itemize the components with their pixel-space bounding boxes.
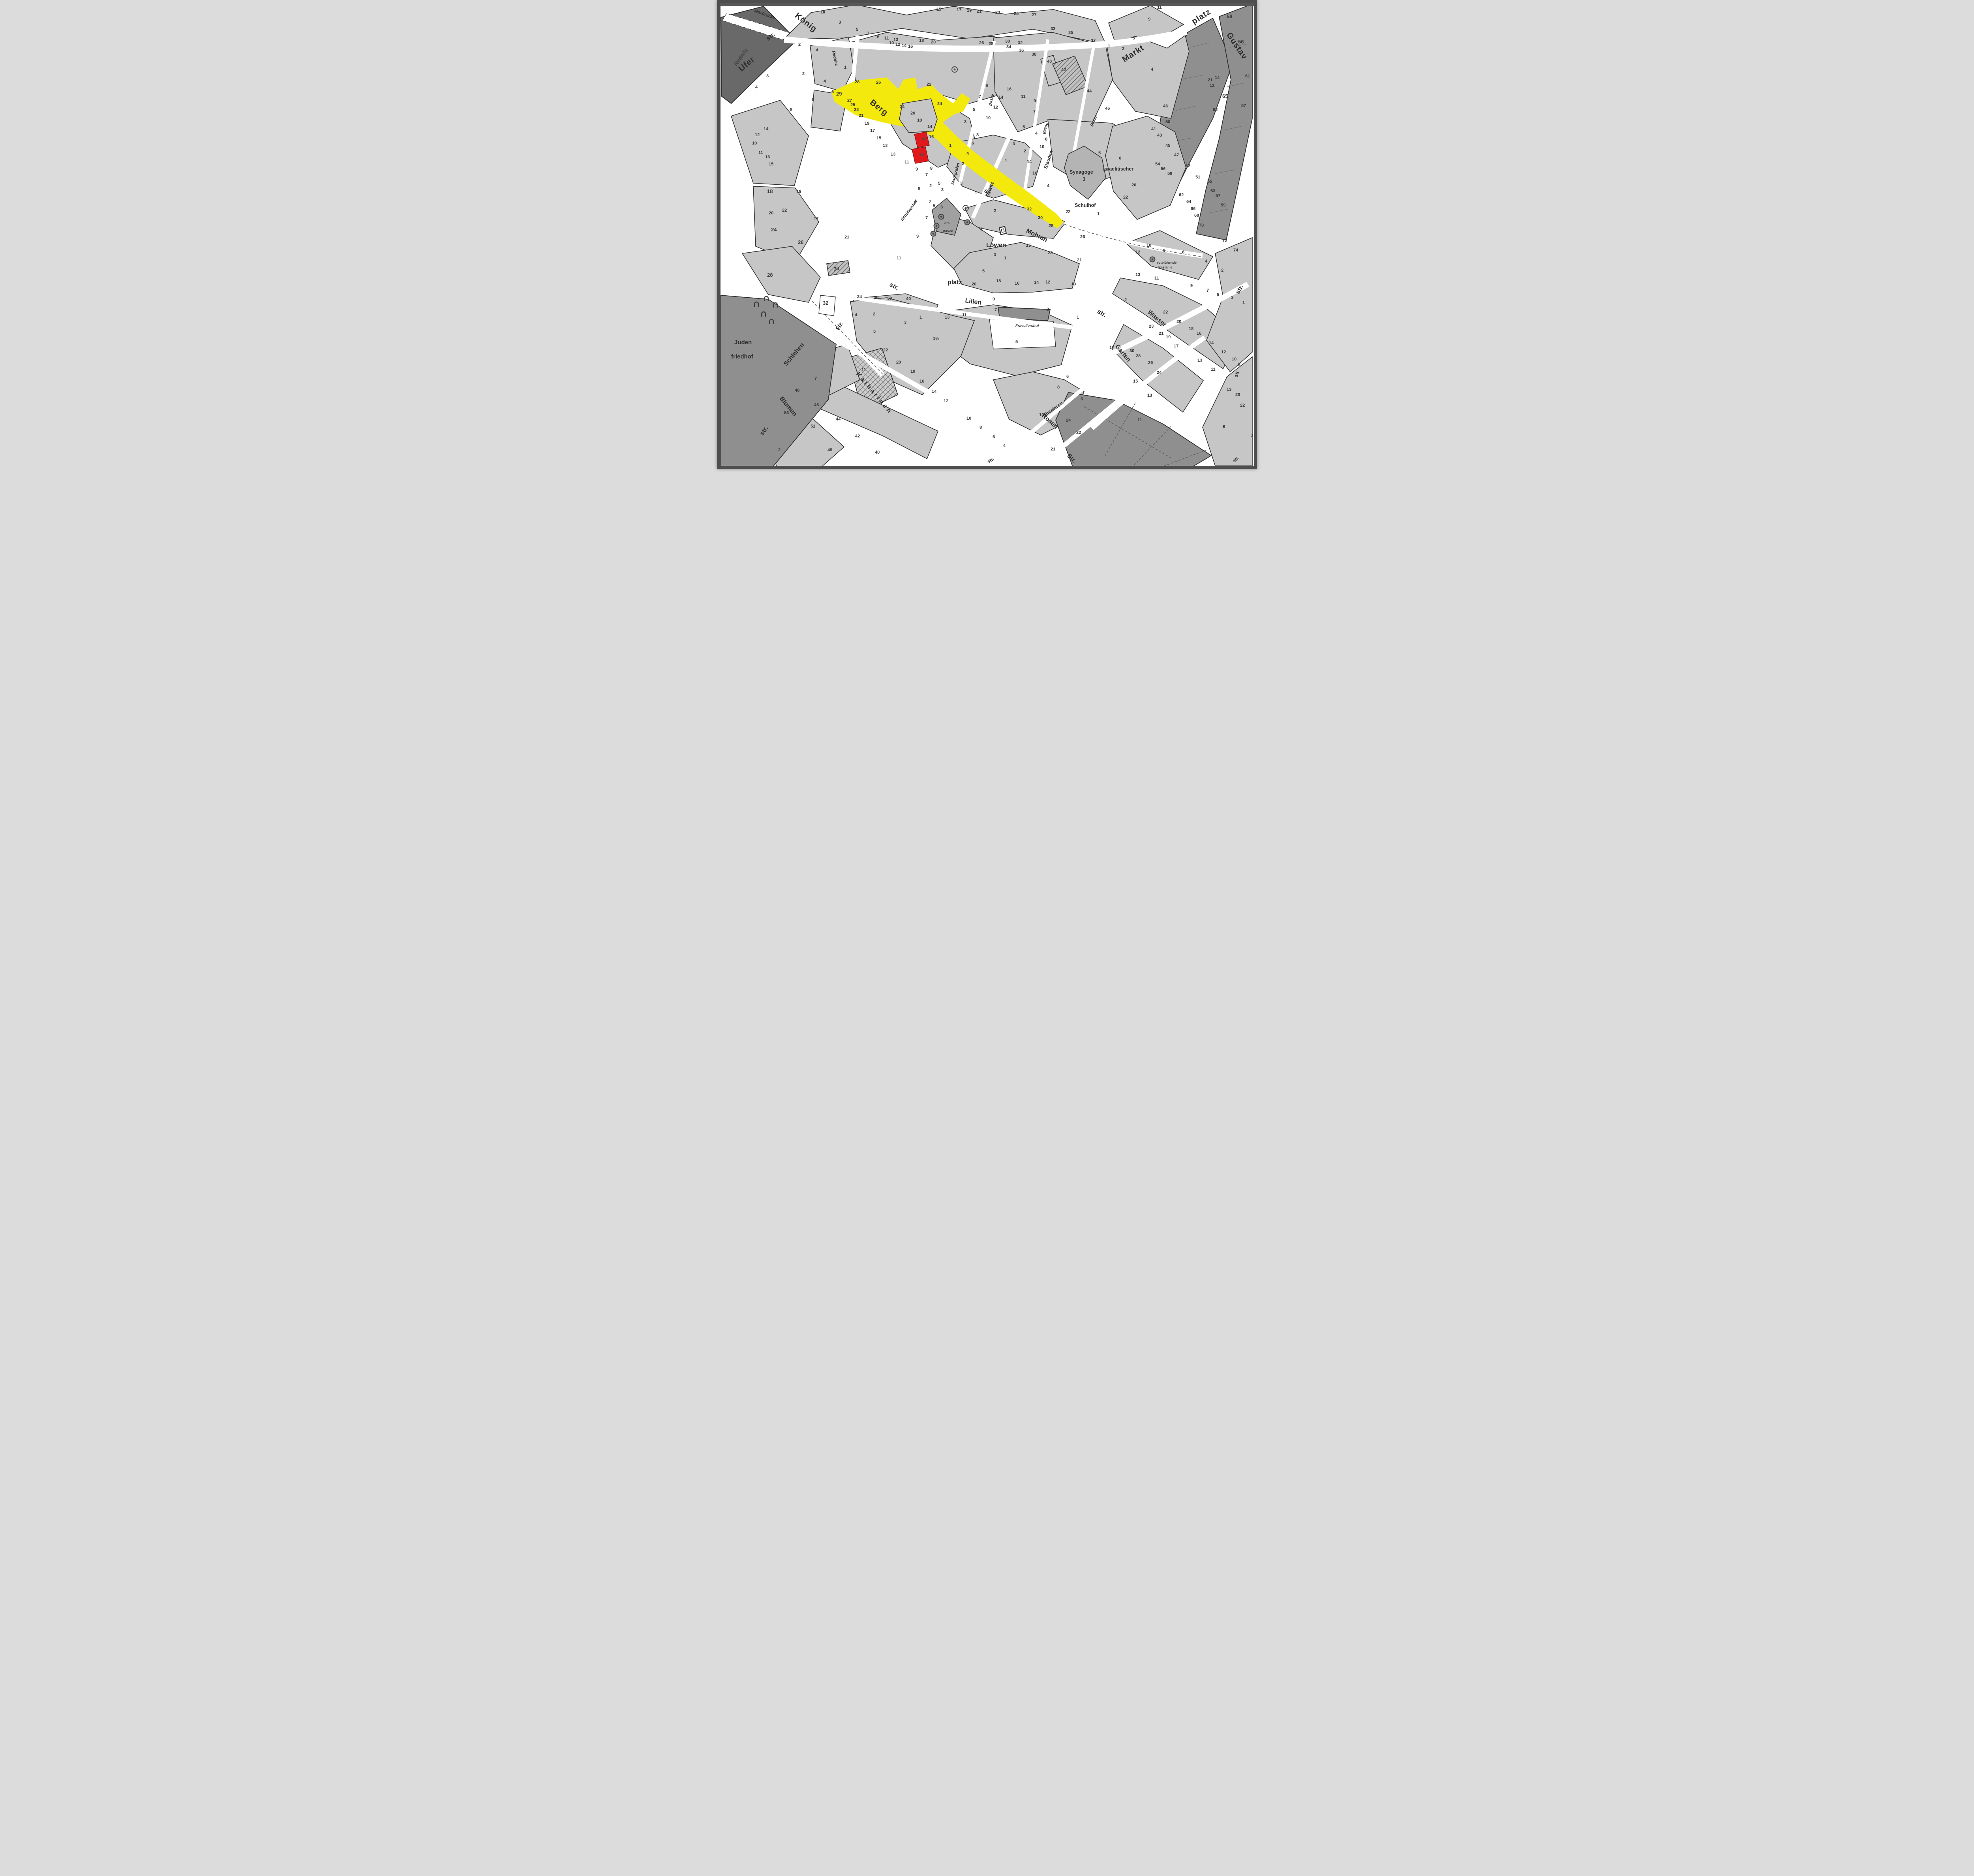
building-number: 5 [873,329,876,334]
building-number: 15 [769,162,773,167]
building-number: 15 [876,136,881,141]
building-number: 40 [875,450,880,455]
historic-city-map: 11a3579111315171921232527333537135911101… [717,0,1257,469]
building-number: 1 [844,65,846,70]
building-number: 13 [1147,393,1152,398]
building-number: 3 [839,20,841,25]
building-number: 7 [979,94,981,99]
building-number: 13 [883,143,888,148]
building-number: 9 [1190,283,1193,288]
building-number: 3 [941,188,944,192]
building-number: 46 [1105,106,1110,111]
building-number: 10 [1232,357,1237,362]
building-number: 2 [929,200,931,204]
building-number: 3 [994,253,996,257]
tree-icon [940,216,942,218]
building-number: 9 [876,34,879,39]
building-number: 36 [874,295,878,300]
building-number: 18 [919,38,924,43]
building-number: 9 [916,167,918,172]
building-number: 24 [937,101,942,106]
building-number: 14 [998,95,1004,100]
building-number: 13 [893,38,898,42]
building-number: 20 [1131,183,1136,188]
building-number: 14 [1209,341,1214,345]
building-number: 4 [824,79,826,84]
building-number: 11 [758,150,763,155]
building-number: 63 [1213,107,1218,112]
building-number: 12 [895,42,900,47]
building-number: 44 [836,417,841,422]
building-number: 8 [1238,362,1240,367]
building-number: 4 [855,313,858,317]
building-number: 10 [1040,144,1044,149]
building-number: 3 [964,120,966,124]
building-number: 18 [1189,326,1193,331]
building-number: 68 [1194,213,1199,218]
building-number: 8 [979,425,982,430]
building-number: 11 [962,313,967,317]
building-number: 13 [945,315,949,320]
building-number: 10 [889,41,894,45]
building-number: 50 [1165,120,1170,124]
building-number: 15 [936,7,941,12]
building-number: 19 [1166,335,1171,340]
building-number: 61 [1245,74,1250,79]
building-number: 1 [1108,44,1110,49]
building-number: 28 [1049,223,1053,228]
building-number: 6 [812,98,814,102]
building-number: 1 [975,191,977,195]
building-number: 3 [1251,433,1253,438]
building-number: 5 [1015,340,1018,344]
building-number: 7 [925,173,928,177]
building-number: 20 [1177,319,1181,324]
building-number: 5 [1023,125,1025,129]
building-number: 9 [986,84,988,88]
building-number: 6 [1066,374,1069,379]
street-label: rotblühende [1157,261,1177,265]
building-number: 49 [828,448,832,452]
tree-icon [965,207,967,209]
building-number: 6 [1119,156,1121,161]
building-number: 17 [870,128,875,133]
monument-icon [999,227,1006,235]
building-number: 3 [1081,397,1083,401]
building-number: 25 [1014,11,1019,16]
building-number: 3 [1013,142,1015,146]
building-number: 74 [1233,248,1238,253]
building-number: 24 [1157,370,1162,375]
street-label: Schulhof [1075,203,1096,208]
building-number: 4 [1151,67,1154,72]
building-number: 20 [931,40,936,45]
building-number: 65 [1222,93,1228,99]
building-number: 8 [1163,249,1165,253]
building-number: 11 [1211,367,1216,372]
building-number: 11 [1137,418,1142,422]
building-number: 30 [1005,39,1010,44]
building-number: 8 [930,166,933,171]
building-number: 5 [973,107,975,112]
building-number: 33 [1051,26,1055,31]
building-number: 64 [1186,199,1192,204]
building-number: 22 [1123,195,1128,200]
building-number: 5 [1133,36,1135,41]
street-label: drei [944,221,951,225]
building-number: 22 [883,348,888,353]
building-number: 14 [927,124,933,129]
building-number: 32 [823,300,828,306]
building-number: 51 [811,424,815,429]
building-number: 19 [967,8,972,13]
street-label: Synagoge [1070,169,1093,175]
building-number: 14 [1034,280,1039,285]
building-number: 18 [996,279,1001,283]
building-number: 18 [917,118,922,123]
building-number: 11 [1021,94,1026,99]
building-number: 13 [1227,387,1231,392]
building-number: 2 [798,42,801,47]
building-number: 7 [1207,288,1209,293]
building-number: 6 [993,435,995,439]
building-number: 22 [782,208,787,213]
building-number: 55 [1207,179,1212,184]
building-number: 34 [857,295,862,299]
building-number: 16 [1007,87,1011,92]
building-number: 16 [929,135,934,139]
building-number: 2 [962,161,964,166]
building-number: 45 [1165,143,1170,148]
building-number: 10 [752,141,757,146]
building-number: 3 [1083,176,1085,182]
building-number: 5 [1098,151,1101,156]
street-label: friedhof [731,353,754,360]
building-number: 8 [1057,385,1060,390]
building-number: 42 [855,434,860,439]
building-number: 20 [1235,392,1240,397]
building-number: 20 [910,111,915,116]
building-number: 2 [929,184,932,188]
building-number: 8 [1045,137,1047,142]
building-number: 1 [1097,212,1100,216]
building-number: 37 [1091,38,1096,43]
street-label: Juden [734,339,752,346]
building-number: 11 [897,256,901,261]
building-number: 22 [1240,403,1245,408]
building-number: 26 [1080,234,1085,239]
building-number: 4 [966,151,969,156]
building-number: 7 [867,31,869,36]
street-label: Birken [943,229,953,233]
building-number: 4 [1035,131,1038,136]
building-number: 8 [976,133,979,137]
building-number: 2 [873,312,875,317]
building-number: 25 [850,103,855,107]
building-number: 48 [795,388,799,393]
building-number: 3 [1122,47,1124,51]
building-number: 6 [831,90,834,94]
building-number: 3 [1231,295,1233,300]
building-number: 12 [1221,350,1226,355]
building-number: 23 [995,10,1000,15]
building-number: 47 [1174,153,1179,158]
building-number: 23 [1149,324,1154,329]
building-number: 1 [1005,159,1007,163]
building-number: 21 [977,9,981,14]
building-number: 3 [960,181,963,186]
building-number: 24 [771,227,777,233]
building-number: 26 [1148,360,1153,365]
building-number: 57 [1216,193,1220,198]
building-number: 16 [919,379,924,384]
building-number: 46 [814,403,819,407]
building-number: 6 [972,141,974,146]
building-number: 30 [833,265,839,272]
building-number: 7 [814,376,817,381]
building-number: 53 [1210,189,1215,193]
building-number: 17 [1174,344,1178,349]
building-number: 14 [764,127,769,131]
building-number: 2 [1124,298,1127,302]
building-number: 44 [1087,89,1092,94]
building-number: 38 [887,296,892,301]
building-number: 4 [1003,443,1006,448]
building-number: 26 [798,239,803,245]
building-number: 5 [856,27,858,32]
building-number: 14 [932,389,937,394]
building-number: 12 [1135,250,1140,255]
building-number: 4 [816,48,818,53]
building-number: 9 [916,234,919,239]
building-number: 14 [1027,159,1032,164]
building-number: 34 [1006,45,1011,49]
building-number: 5 [933,204,935,208]
building-number: 8 [918,186,920,191]
building-number: 3 [1047,307,1049,312]
building-number: 8 [790,107,792,112]
building-number: 32 [1027,207,1032,212]
building-number: 25 [1026,243,1031,248]
building-number: 24 [1066,418,1071,423]
building-number: 22 [1163,310,1168,315]
building-number: 10 [1146,243,1151,248]
building-number: 17 [1109,345,1114,350]
building-number: 5 [1217,293,1219,297]
city-map-screenshot: 11a3579111315171921232527333537135911101… [717,0,1257,469]
building-number: 49 [1185,163,1190,168]
building-number: 54 [1155,162,1160,167]
tree-icon [933,233,934,234]
building-number: 11 [884,36,889,41]
building-number: 17 [957,8,961,12]
tree-icon [954,69,956,71]
building-number: 1 [1077,315,1079,320]
building-number: 4 [755,85,758,90]
tree-icon [936,225,937,227]
building-number: 28 [1136,354,1141,358]
building-number: 12 [993,105,998,110]
building-number: 9 [1148,17,1150,22]
building-number: 32 [1018,41,1023,45]
building-number: 72 [1222,238,1227,243]
building-number: 57 [1241,103,1246,108]
building-number: 5 [982,269,985,274]
building-number: 14 [1215,75,1220,80]
building-number: 1 [1242,300,1245,305]
building-number: 3 [940,205,943,210]
building-number: 22 [1076,430,1081,435]
building-number: 20 [972,282,976,287]
street-label: platz [948,279,962,286]
building-number: 12 [755,133,760,137]
building-number: 4 [1205,259,1208,264]
building-number: 9 [1223,424,1225,429]
building-number: 1 [919,315,922,320]
building-number: 62 [1179,193,1184,197]
street-label: Fraveliershuf [1015,324,1039,328]
building-number: 58 [1227,13,1232,19]
building-number: 9 [1034,99,1036,103]
building-number: 22 [927,82,931,87]
building-number: 10 [1071,282,1076,287]
building-number: 23 [1048,251,1053,255]
building-number: 38 [1032,52,1036,57]
building-number: 6 [1182,250,1184,255]
building-number: 20 [769,211,773,216]
building-number: 36 [1019,48,1024,53]
building-number: 1 [1004,256,1006,261]
building-number: 12 [944,399,948,403]
building-number: 10 [986,116,991,120]
building-number: 41 [1151,127,1156,131]
building-number: 1½ [933,336,939,341]
building-number: 12 [921,136,926,142]
building-number: 2 [1221,268,1223,273]
building-number: 30 [1038,216,1043,220]
building-number: 21 [1077,258,1082,263]
building-number: 15 [1133,379,1138,384]
building-number: 3 [766,74,769,79]
building-number: 15 [796,189,801,194]
building-number: 27 [1032,13,1036,17]
building-number: 10 [919,152,924,158]
building-number: 23 [854,107,859,112]
building-number: 26 [876,80,881,85]
building-number: 7 [925,216,928,220]
building-number: 56 [1161,167,1165,171]
building-number: 43 [1157,133,1162,138]
street-label: Löwen [986,242,1006,249]
building-number: 21 [1159,331,1163,336]
building-number: 17 [814,217,818,221]
building-number: 18 [767,188,773,194]
building-number: 11 [904,160,909,165]
street-label: Israelitischer [1103,166,1133,172]
building-number: 11 [861,368,866,372]
building-number: 5 [938,181,940,186]
building-number: 13 [1135,272,1140,277]
building-number: 24 [900,105,905,109]
building-number: 21 [859,113,863,118]
building-number: 12 [1210,83,1214,88]
building-number: 16 [1032,171,1037,176]
building-number: 2 [1024,149,1026,154]
building-number: 13 [891,152,895,157]
building-number: 4 [980,227,983,232]
building-number: 11 [1154,276,1159,281]
building-number: 1 [949,143,951,148]
building-number: 16 [1015,281,1019,286]
building-number: 28 [989,41,993,46]
building-number: 28 [855,80,859,84]
building-number: 21 [1208,78,1212,83]
building-number: 58 [1167,171,1172,176]
building-number: 7 [1033,109,1036,114]
building-number: 16 [1197,331,1201,336]
building-number: 12 [1045,280,1050,285]
building-number: 3 [904,320,906,325]
building-number: 40 [1047,59,1052,64]
building-number: 2 [994,208,996,213]
building-number: 16 [908,44,913,49]
building-number: 4 [1047,184,1050,188]
building-number: 40 [906,296,911,301]
building-number: 2 [802,71,805,76]
building-number: 35 [1068,30,1073,35]
tree-icon [1152,259,1153,260]
building-number: 29 [836,91,842,97]
building-number: 66 [1191,206,1195,211]
building-number: 46 [1163,104,1168,109]
building-number: 2 [778,448,781,452]
building-number: 42 [1061,68,1066,72]
building-number: 7 [995,308,997,312]
building-number: 70 [1199,223,1204,228]
building-number: 20 [896,360,901,365]
building-number: 9 [993,297,995,302]
building-number: 13 [765,155,770,159]
building-number: 30 [1130,349,1134,353]
building-number: 2 [1066,210,1068,214]
building-number: 59 [1221,203,1225,208]
building-number: 10 [966,416,971,421]
building-number: 19 [865,121,869,126]
building-number: 18 [910,369,915,374]
building-number: 14 [902,43,907,48]
tree-icon [966,221,968,223]
building-number: 1a [820,10,826,15]
building-number: 13 [1197,358,1202,363]
building-number: 28 [767,272,773,278]
street-label: Kastanie [1158,265,1173,269]
building-number: 51 [1195,175,1200,180]
building-number: 21 [1051,447,1055,452]
building-number: 21 [844,235,849,240]
building-number: 26 [979,41,984,45]
